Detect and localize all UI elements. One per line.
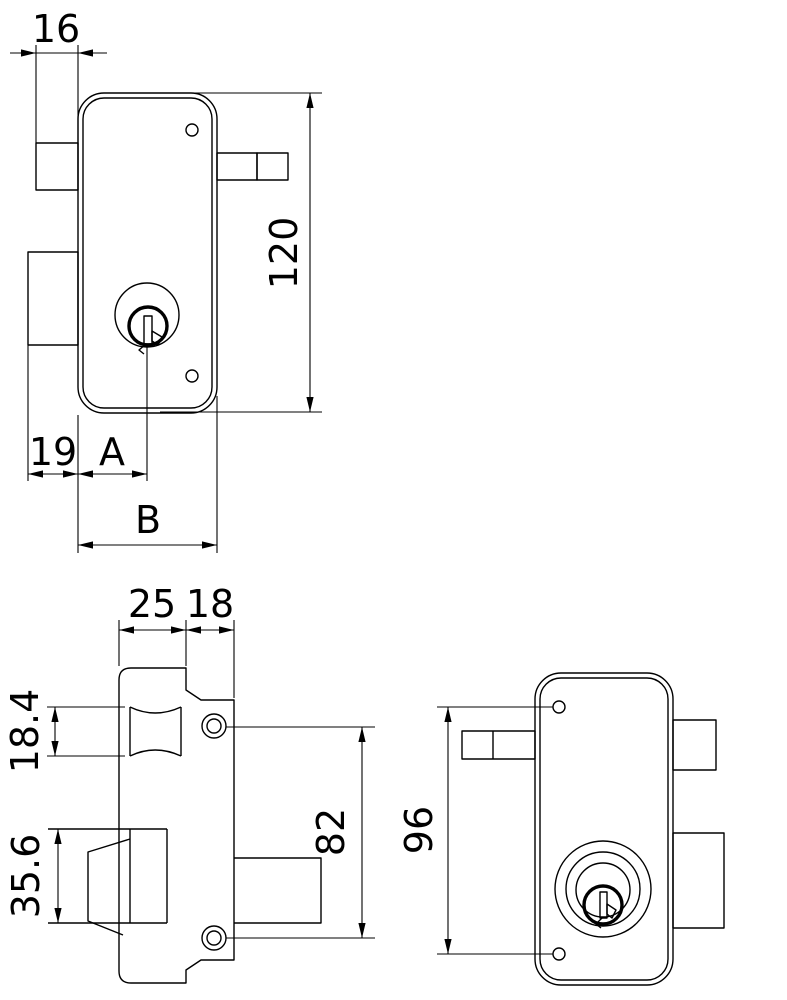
rear-view: 96 [397, 673, 724, 985]
latch-bolt [462, 731, 535, 759]
dim-label-latch-protrusion: 16 [32, 7, 80, 51]
dim-label-faceplate-width: 18 [186, 582, 234, 626]
deadbolt-tip-profile [88, 839, 130, 935]
dim-label-body-width: B [135, 498, 161, 542]
screw-hole-top [207, 719, 221, 733]
dim-label-edge-offset: 19 [29, 430, 77, 474]
dim-label-latch-height: 18.4 [3, 689, 47, 774]
side-view: 25 18 18.4 35.6 82 [3, 582, 375, 983]
dim-label-case-depth: 25 [128, 582, 176, 626]
latch-spool-top [130, 707, 181, 713]
screw-hole-bottom [207, 931, 221, 945]
screw-boss-bottom [202, 926, 226, 950]
screw-boss-top [202, 714, 226, 738]
keyhole-icon [144, 316, 152, 344]
lock-body-inner-outline [540, 678, 668, 980]
mount-hole-bottom [553, 948, 565, 960]
deadbolt-rear [673, 833, 724, 928]
deadbolt-rear-extension [234, 858, 321, 923]
cylinder-rose [115, 283, 179, 347]
dim-label-bolt-height: 35.6 [4, 834, 48, 919]
keyhole-icon [600, 892, 607, 918]
dim-label-body-height: 120 [262, 217, 306, 290]
dim-label-screw-spacing: 82 [309, 808, 353, 856]
dim-label-cylinder-backset: A [99, 430, 125, 474]
case-profile-outline [119, 668, 234, 983]
slide-bolt-segment-1 [217, 153, 257, 180]
mount-hole-top [553, 701, 565, 713]
slide-bolt-segment-2 [257, 153, 288, 180]
mount-hole-top [186, 124, 198, 136]
lock-drawing-svg: 16 120 19 A B [0, 0, 787, 1000]
front-view: 16 120 19 A B [10, 7, 322, 553]
deadbolt-front [28, 252, 78, 345]
slide-bolt [673, 720, 716, 770]
mount-hole-bottom [186, 370, 198, 382]
dim-label-hole-spacing: 96 [397, 806, 441, 854]
latch-bolt [36, 143, 78, 190]
latch-spool-bottom [130, 750, 181, 756]
lock-body-outline [535, 673, 673, 985]
technical-drawing-canvas: 16 120 19 A B [0, 0, 787, 1000]
